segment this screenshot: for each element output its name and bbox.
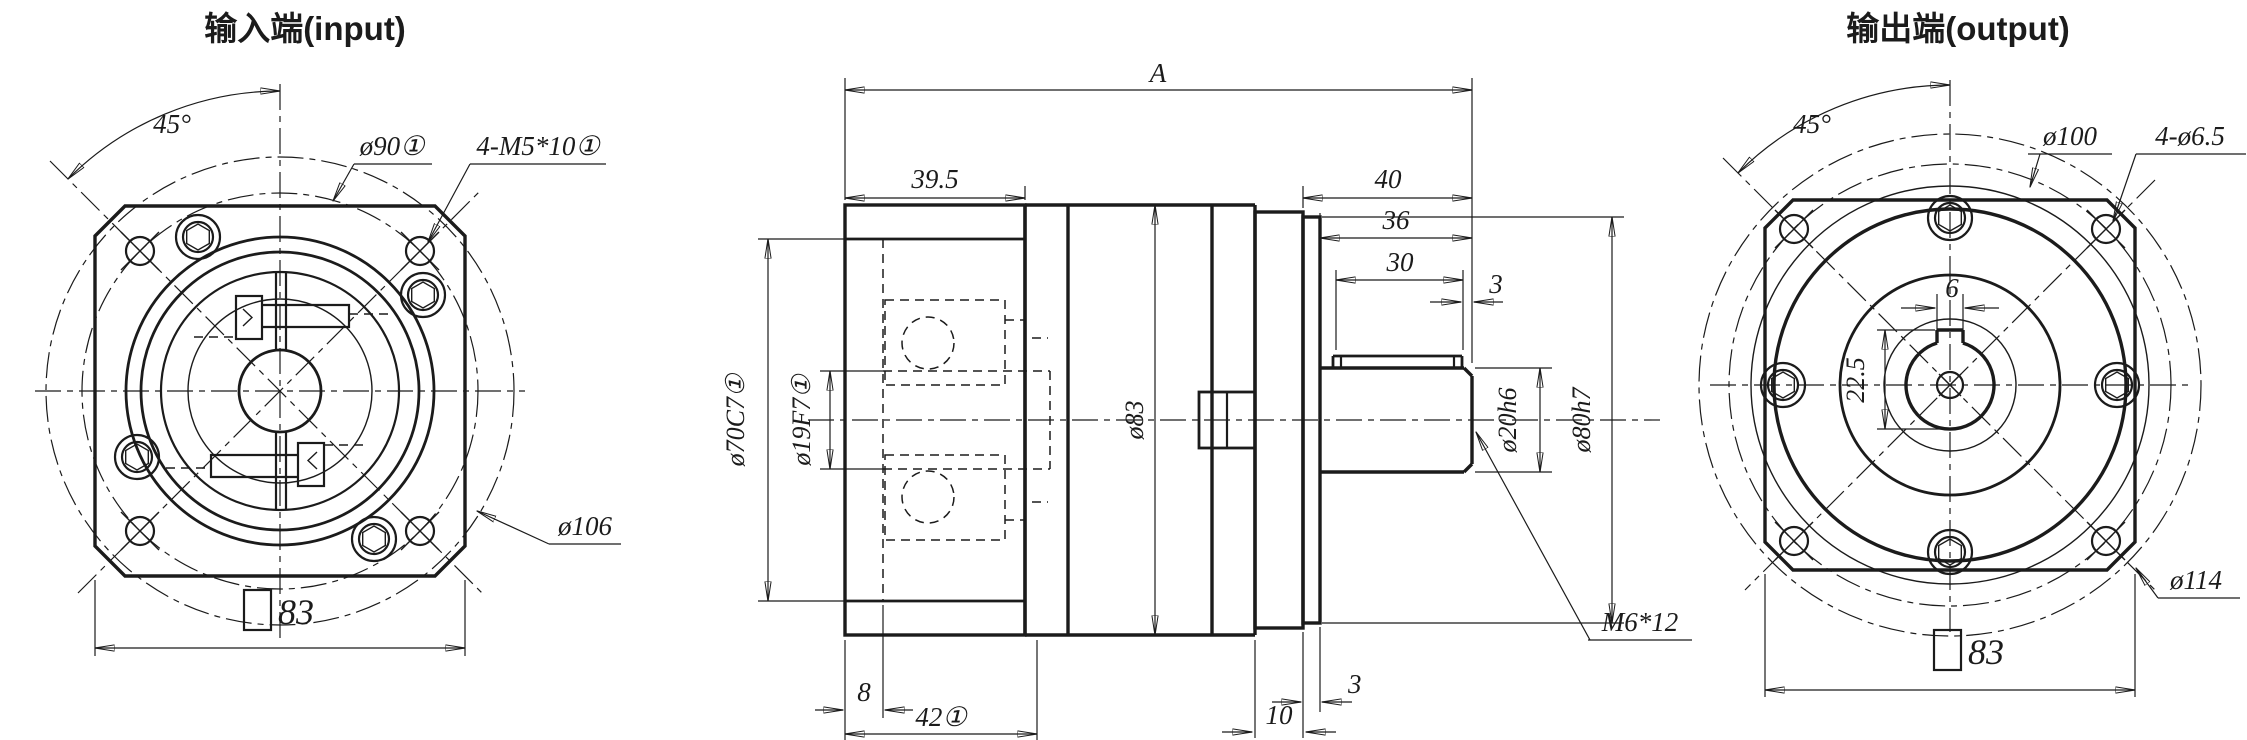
dim-recess-depth: 8 bbox=[857, 677, 871, 707]
side-dimensions: A 39.5 40 36 30 3 ø83 ø70C7① bbox=[721, 58, 1692, 740]
dim-input-corner-holes: 4-M5*10① bbox=[476, 131, 601, 161]
dim-input-flange-dia: ø106 bbox=[557, 511, 613, 541]
dim-input-depth: 39.5 bbox=[910, 164, 958, 194]
dim-flange-length: 42① bbox=[915, 702, 968, 732]
dim-spigot-dia: ø80h7 bbox=[1567, 387, 1596, 454]
dim-total-length: A bbox=[1148, 58, 1167, 88]
dim-key-height: 22.5 bbox=[1841, 357, 1870, 403]
input-view-title: 输入端(input) bbox=[204, 10, 406, 47]
dim-pilot-dia: ø70C7① bbox=[721, 372, 750, 467]
output-view: 输出端(output) bbox=[1699, 10, 2246, 697]
dim-shaft-end-length: 40 bbox=[1375, 164, 1403, 194]
dim-key-tip-gap: 3 bbox=[1488, 269, 1503, 299]
gearbox-drawing: 输入端(input) bbox=[0, 0, 2247, 740]
dim-output-corner-holes: 4-ø6.5 bbox=[2155, 121, 2225, 151]
dim-bore-dia: ø19F7① bbox=[787, 373, 816, 467]
dim-tip-tap: M6*12 bbox=[1601, 607, 1679, 637]
dim-output-square: 83 bbox=[1968, 632, 2004, 672]
side-outline bbox=[845, 205, 1472, 635]
dim-36: 36 bbox=[1382, 205, 1411, 235]
dim-plate-length: 10 bbox=[1266, 700, 1294, 730]
dim-input-square: 83 bbox=[278, 592, 314, 632]
dim-input-angle: 45° bbox=[153, 109, 191, 139]
input-dimensions: 45° ø90① 4-M5*10① ø106 83 bbox=[68, 91, 621, 656]
dim-key-length: 30 bbox=[1386, 247, 1415, 277]
dim-output-angle: 45° bbox=[1793, 109, 1831, 139]
dim-shaft-dia: ø20h6 bbox=[1493, 388, 1522, 454]
dim-output-bolt-circle: ø100 bbox=[2042, 121, 2098, 151]
input-view-centerlines bbox=[35, 84, 525, 640]
output-shaft bbox=[1320, 356, 1472, 472]
side-view: A 39.5 40 36 30 3 ø83 ø70C7① bbox=[721, 58, 1692, 740]
drawing-sheet: 输入端(input) bbox=[0, 0, 2247, 740]
dim-spigot-length: 3 bbox=[1347, 669, 1362, 699]
dim-corner-dia: ø114 bbox=[2169, 565, 2222, 595]
output-view-title: 输出端(output) bbox=[1846, 10, 2070, 47]
dim-input-bolt-circle: ø90① bbox=[359, 131, 427, 161]
dim-key-width: 6 bbox=[1945, 273, 1959, 303]
dim-body-dia: ø83 bbox=[1120, 401, 1149, 441]
input-view: 输入端(input) bbox=[35, 10, 621, 656]
